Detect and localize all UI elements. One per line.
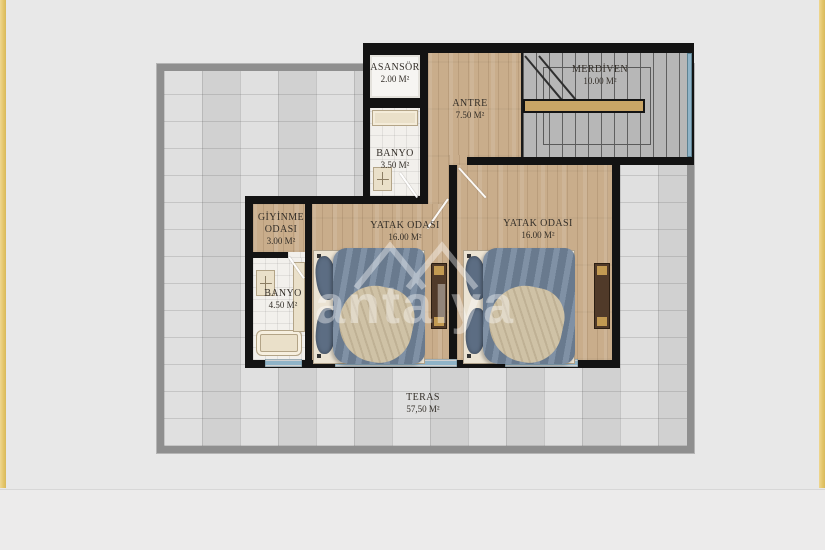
stair-handrail (523, 99, 645, 113)
bed-bedroom1 (313, 250, 425, 364)
bed-bedroom2 (463, 250, 575, 364)
wall-bedroom2-right (612, 155, 620, 205)
window-stairwell (687, 53, 692, 157)
window-bathroom (265, 359, 302, 367)
label-bedroom1: YATAK ODASI 16.00 M² (360, 220, 450, 243)
floor-plan-page: ASANSÖR 2.00 M² BANYO 3.50 M² ANTRE 7.50… (0, 0, 825, 550)
page-trim-left (0, 0, 6, 488)
label-staircase: MERDİVEN 10.00 M² (554, 64, 646, 87)
bed-post (467, 354, 471, 358)
label-entry-hall: ANTRE 7.50 M² (438, 98, 502, 121)
vanity-counter (372, 110, 418, 126)
wardrobe-bedroom1 (431, 263, 447, 329)
wall-bedroom-divider (449, 165, 457, 204)
label-elevator: ASANSÖR 2.00 M² (366, 62, 424, 85)
page-trim-right (819, 0, 825, 488)
page-bottom-strip (0, 489, 825, 550)
bed-post (317, 354, 321, 358)
label-bathroom-lower: BANYO 4.50 M² (256, 288, 310, 311)
door-opening-bedroom2 (449, 155, 467, 165)
label-dressing-room: GİYİNME ODASI 3.00 M² (252, 212, 310, 247)
label-terrace: TERAS 57,50 M² (383, 392, 463, 415)
wardrobe-bedroom2 (594, 263, 610, 329)
bathtub (256, 330, 302, 356)
label-bathroom-upper: BANYO 3.50 M² (368, 148, 422, 171)
label-bedroom2: YATAK ODASI 16.00 M² (492, 218, 584, 241)
